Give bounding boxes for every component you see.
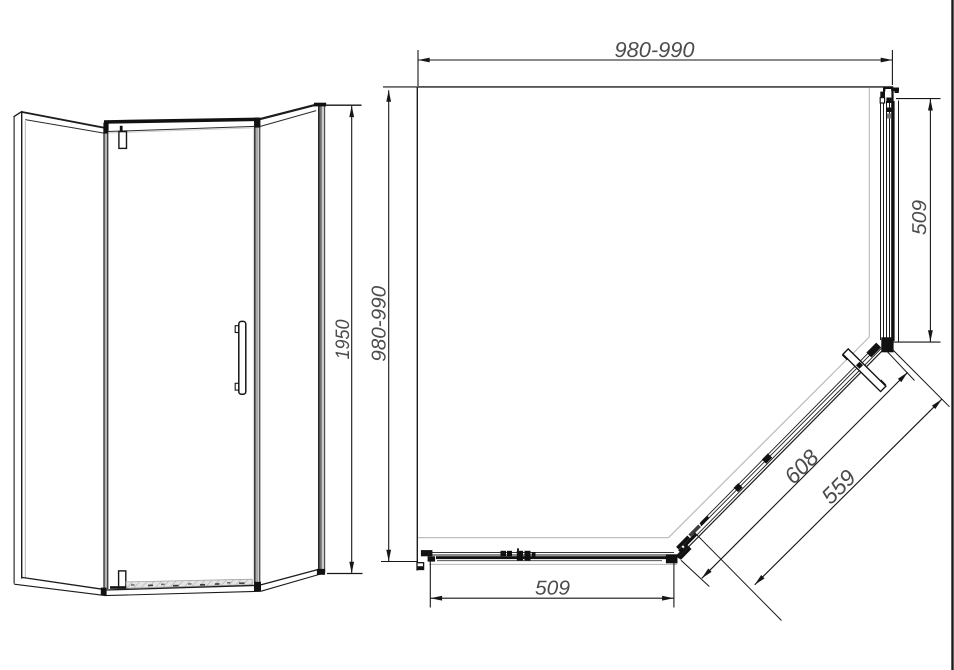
svg-text:509: 509 — [909, 200, 931, 235]
svg-text:980-990: 980-990 — [368, 286, 390, 362]
svg-text:509: 509 — [535, 578, 570, 600]
svg-text:980-990: 980-990 — [615, 38, 695, 62]
svg-text:1950: 1950 — [332, 319, 354, 359]
